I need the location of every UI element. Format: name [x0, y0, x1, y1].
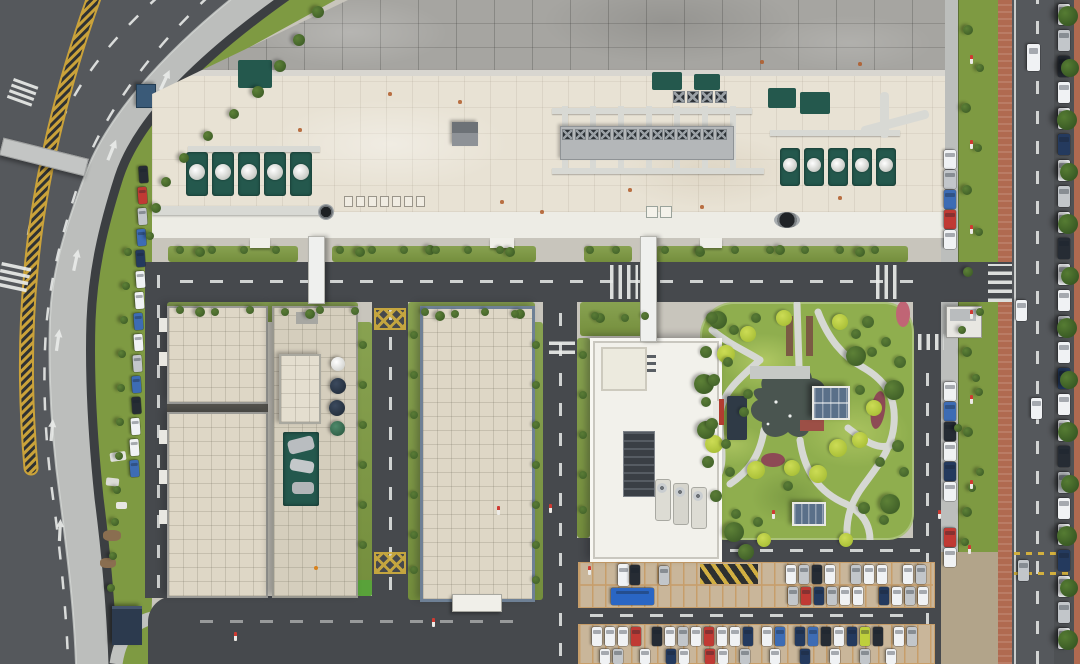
building-b-roof: [167, 412, 268, 598]
bush: [766, 246, 774, 254]
car: [1058, 290, 1070, 311]
bush: [855, 385, 865, 395]
rooftop-tank-green: [330, 421, 345, 436]
bush: [281, 308, 289, 316]
crosswalk-main-road-east: [876, 265, 898, 299]
chimney-1: [657, 483, 667, 493]
car: [944, 442, 956, 461]
flower-bed-3: [896, 302, 910, 327]
car: [133, 313, 143, 331]
v2-west-verge: [356, 322, 372, 596]
bus: [611, 588, 654, 605]
tank-small-2: [660, 206, 672, 218]
car: [864, 565, 874, 584]
dock-tab-5: [159, 510, 167, 524]
crosswalk-main-road: [610, 265, 638, 299]
tree: [151, 203, 161, 213]
tree: [961, 103, 971, 113]
roof-canopy-walkway: [152, 212, 945, 240]
car: [1016, 300, 1027, 321]
bush: [729, 325, 739, 335]
bush: [359, 541, 367, 549]
bush: [751, 313, 761, 323]
car: [827, 587, 837, 605]
vent-row-3: [368, 196, 377, 207]
tree: [884, 380, 904, 400]
tree: [975, 228, 983, 236]
v2-road-dashes: [389, 310, 392, 590]
car: [892, 587, 902, 605]
cooling-fan-unit: [562, 129, 573, 140]
tree: [1060, 579, 1078, 597]
bush: [351, 307, 359, 315]
bush: [208, 246, 216, 254]
bush: [579, 471, 587, 479]
pump-unit: [215, 164, 231, 180]
cooling-fan-unit: [613, 129, 624, 140]
tree: [962, 507, 972, 517]
rooftop-tank-white: [331, 357, 345, 371]
pump-unit: [855, 158, 869, 172]
cooling-fan-unit: [677, 129, 688, 140]
car: [907, 627, 917, 646]
bush: [725, 467, 735, 477]
vent-dash-3: [647, 369, 656, 372]
car: [631, 627, 641, 646]
bush: [753, 517, 763, 527]
car: [718, 649, 728, 664]
car: [801, 587, 811, 605]
car: [834, 627, 844, 646]
pad-machine-3: [292, 482, 314, 494]
car: [134, 292, 144, 310]
tree: [975, 388, 983, 396]
tree: [120, 316, 128, 324]
tree: [974, 144, 982, 152]
delineator-pole: [432, 618, 435, 627]
tree: [1060, 371, 1078, 389]
bush: [359, 381, 367, 389]
bush: [899, 467, 909, 477]
bush: [532, 421, 540, 429]
bush: [246, 306, 254, 314]
car: [886, 649, 896, 664]
car: [130, 418, 140, 436]
bush: [783, 481, 793, 491]
delineator-pole: [588, 566, 591, 575]
car: [717, 627, 727, 646]
dock-tab-1: [159, 318, 167, 332]
equipment-pad-right-2: [800, 92, 830, 114]
pump-unit: [807, 158, 821, 172]
car: [1031, 398, 1042, 419]
tree: [252, 86, 264, 98]
tree: [117, 384, 125, 392]
bush: [723, 357, 733, 367]
car: [133, 334, 143, 352]
cooling-fan-unit: [673, 91, 685, 103]
car: [679, 649, 689, 664]
vent-row-1: [344, 196, 353, 207]
car: [613, 649, 623, 664]
tree: [1058, 214, 1078, 234]
car: [618, 627, 628, 646]
cooling-fan-unit: [588, 129, 599, 140]
delineator-pole: [970, 480, 973, 489]
vent-dash-1: [647, 355, 656, 358]
tree: [195, 307, 205, 317]
tree: [1058, 6, 1078, 26]
rust-stain: [458, 100, 462, 104]
vent-row-5: [392, 196, 401, 207]
rooftop-gray-box: [452, 122, 478, 146]
bush: [359, 421, 367, 429]
tree: [107, 584, 115, 592]
delineator-pole: [970, 140, 973, 149]
bush: [579, 506, 587, 514]
tree: [1060, 163, 1078, 181]
bush: [410, 451, 418, 459]
tree: [829, 439, 847, 457]
bush: [368, 246, 376, 254]
small-grass-pad: [358, 580, 372, 596]
car: [630, 565, 640, 585]
cooling-fan-unit: [575, 129, 586, 140]
bush: [875, 457, 885, 467]
car: [1058, 602, 1070, 623]
bush: [532, 341, 540, 349]
car: [840, 587, 850, 605]
car: [894, 627, 904, 646]
bush: [731, 246, 739, 254]
tree: [839, 533, 853, 547]
bush: [532, 541, 540, 549]
delineator-pole: [549, 504, 552, 513]
rooftop-tank-navy-1: [330, 378, 346, 394]
vent-row-4: [380, 196, 389, 207]
apron-dashes: [200, 620, 530, 623]
tree: [195, 247, 205, 257]
bush: [858, 502, 870, 514]
tree: [1061, 267, 1079, 285]
vent-row-6: [404, 196, 413, 207]
car: [873, 627, 883, 646]
tree: [855, 247, 865, 257]
rust-stain: [540, 210, 544, 214]
bush: [532, 576, 540, 584]
bush: [892, 440, 904, 452]
chimney-2: [675, 487, 685, 497]
tree: [962, 347, 972, 357]
garden-solar-panel: [792, 502, 826, 526]
tree: [355, 247, 365, 257]
tree: [203, 131, 213, 141]
building-d-canopy: [452, 594, 502, 612]
car: [129, 460, 139, 478]
tree: [976, 308, 984, 316]
bush: [708, 374, 720, 386]
rooftop-tank-navy-2: [329, 400, 345, 416]
building-e-roof: [590, 338, 722, 562]
car: [1058, 30, 1070, 51]
planter-strip-2: [806, 316, 813, 356]
car: [851, 565, 861, 584]
bush: [591, 312, 599, 320]
tree: [972, 374, 980, 382]
pump-unit: [879, 158, 893, 172]
pump-unit: [831, 158, 845, 172]
car: [830, 649, 840, 664]
tree: [161, 177, 171, 187]
car: [743, 627, 753, 646]
tree: [852, 432, 868, 448]
rust-stain: [388, 92, 392, 96]
tree: [963, 427, 973, 437]
car: [786, 565, 796, 584]
tree: [124, 248, 132, 256]
delineator-pole: [970, 55, 973, 64]
car: [135, 250, 145, 268]
car: [944, 150, 956, 169]
car: [705, 649, 715, 664]
garden-pergola: [727, 396, 747, 440]
bush: [176, 246, 184, 254]
main-road-center-dashes: [180, 280, 930, 283]
tree: [775, 245, 785, 255]
crosswalk-east-vertical-road: [918, 334, 944, 350]
bush: [410, 531, 418, 539]
tree: [505, 247, 515, 257]
parking-aisle-dashes: [590, 614, 920, 617]
car: [944, 462, 956, 481]
car: [814, 587, 824, 605]
tank-small-1: [646, 206, 658, 218]
cooling-fan-unit: [703, 129, 714, 140]
aerial-campus-scene: [0, 0, 1080, 664]
car: [853, 587, 863, 605]
dock-tab-3: [159, 430, 167, 444]
tree: [832, 314, 848, 330]
crosswalk-exit: [988, 264, 1012, 302]
parking-hatch-zone: [700, 564, 758, 584]
bush: [359, 341, 367, 349]
tree: [958, 326, 966, 334]
equipment-pad-center-2: [694, 74, 720, 90]
car: [137, 208, 147, 226]
switchgear-array: [623, 431, 655, 497]
bush: [702, 456, 714, 468]
car: [600, 649, 610, 664]
tree: [1058, 422, 1078, 442]
bush: [743, 389, 753, 399]
cooling-fan-unit: [687, 91, 699, 103]
car: [1058, 82, 1070, 103]
car: [775, 627, 785, 646]
car: [918, 587, 928, 605]
tree: [1057, 526, 1077, 546]
bush: [612, 246, 620, 254]
tree: [229, 109, 239, 119]
orange-marker-dot: [314, 566, 318, 570]
car: [860, 649, 870, 664]
bush: [359, 501, 367, 509]
tree: [1061, 475, 1079, 493]
cooling-fan-unit: [664, 129, 675, 140]
car: [659, 566, 669, 585]
car: [1058, 446, 1070, 467]
tree: [179, 153, 189, 163]
car: [944, 528, 956, 547]
bush: [481, 308, 489, 316]
cooling-fan-unit: [716, 129, 727, 140]
tree: [312, 6, 324, 18]
tree: [963, 25, 973, 35]
car: [905, 587, 915, 605]
car: [1058, 186, 1070, 207]
car: [1058, 550, 1070, 571]
bush: [464, 246, 472, 254]
car: [944, 170, 956, 189]
car: [800, 649, 810, 664]
rust-stain: [858, 62, 862, 66]
tree: [111, 518, 119, 526]
bush: [316, 306, 324, 314]
bush: [739, 407, 749, 417]
tree: [740, 326, 756, 342]
duct-right-vertical: [880, 92, 889, 138]
car: [592, 627, 602, 646]
bush: [621, 314, 629, 322]
tree: [747, 461, 765, 479]
tree: [724, 522, 744, 542]
tree: [118, 350, 126, 358]
pump-unit: [783, 158, 797, 172]
building-e-inner-court: [601, 347, 647, 391]
bush: [586, 246, 594, 254]
tree: [1057, 110, 1077, 130]
car: [879, 587, 889, 605]
car: [795, 627, 805, 646]
car: [138, 166, 148, 184]
car: [131, 397, 141, 415]
car: [605, 627, 615, 646]
tree: [809, 465, 827, 483]
car: [691, 627, 701, 646]
bush: [532, 461, 540, 469]
bush: [400, 246, 408, 254]
cooling-fan-unit: [701, 91, 713, 103]
car: [665, 627, 675, 646]
center-road-dashes: [559, 306, 562, 656]
car: [944, 402, 956, 421]
bush: [421, 308, 429, 316]
bush: [240, 246, 248, 254]
car: [1058, 134, 1070, 155]
car: [1058, 238, 1070, 259]
bush: [867, 347, 877, 357]
chimney-opening-right: [774, 212, 800, 228]
tree: [954, 424, 962, 432]
chimney-stack-left: [318, 204, 334, 220]
car: [652, 627, 662, 646]
chimney-3: [693, 491, 703, 501]
tree: [109, 552, 117, 560]
bush: [579, 431, 587, 439]
tarp-debris-3: [116, 502, 127, 509]
car: [944, 548, 956, 567]
tree: [113, 486, 121, 494]
west-road-dashes: [157, 268, 160, 588]
car: [618, 564, 629, 586]
car: [137, 187, 147, 205]
tree: [293, 34, 305, 46]
covered-walkway-east: [640, 236, 657, 342]
vent-dash-2: [647, 362, 656, 365]
rust-stain: [700, 205, 704, 209]
bush: [496, 246, 504, 254]
car: [1027, 44, 1040, 71]
bush: [706, 312, 718, 324]
car: [762, 627, 772, 646]
bush: [579, 351, 587, 359]
bush: [706, 418, 718, 430]
car: [131, 376, 141, 394]
pump-unit: [293, 164, 309, 180]
tree: [757, 533, 771, 547]
bush: [410, 566, 418, 574]
car: [944, 482, 956, 501]
bush: [359, 461, 367, 469]
car: [1058, 342, 1070, 363]
rust-stain: [628, 188, 632, 192]
pump-unit: [241, 164, 257, 180]
car: [944, 382, 956, 401]
pond-deck: [750, 366, 810, 379]
car: [944, 210, 956, 229]
bush: [410, 411, 418, 419]
car: [666, 649, 676, 664]
bush: [862, 316, 874, 328]
dirt-patch-1: [103, 530, 121, 541]
tree: [115, 452, 123, 460]
bush: [532, 381, 540, 389]
tree: [784, 460, 800, 476]
canopy-tab-3: [700, 238, 722, 248]
car: [847, 627, 857, 646]
bush: [432, 246, 440, 254]
cooling-fan-unit: [600, 129, 611, 140]
bush: [851, 329, 861, 339]
junction-box-2: [374, 552, 406, 574]
building-c-roof: [272, 306, 358, 598]
cooling-fan-unit: [626, 129, 637, 140]
car: [944, 230, 956, 249]
campus-apron-southwest: [148, 596, 575, 664]
car: [877, 565, 887, 584]
cooling-fan-unit: [652, 129, 663, 140]
flower-bed-2: [761, 453, 785, 467]
rust-stain: [298, 128, 302, 132]
pump-unit: [189, 164, 205, 180]
rust-stain: [500, 200, 504, 204]
cooling-fan-unit: [715, 91, 727, 103]
bush: [532, 501, 540, 509]
bush: [836, 246, 844, 254]
delineator-pole: [970, 395, 973, 404]
garden-pavilion-solar-roof: [812, 386, 850, 420]
car: [136, 229, 146, 247]
tree: [274, 60, 286, 72]
